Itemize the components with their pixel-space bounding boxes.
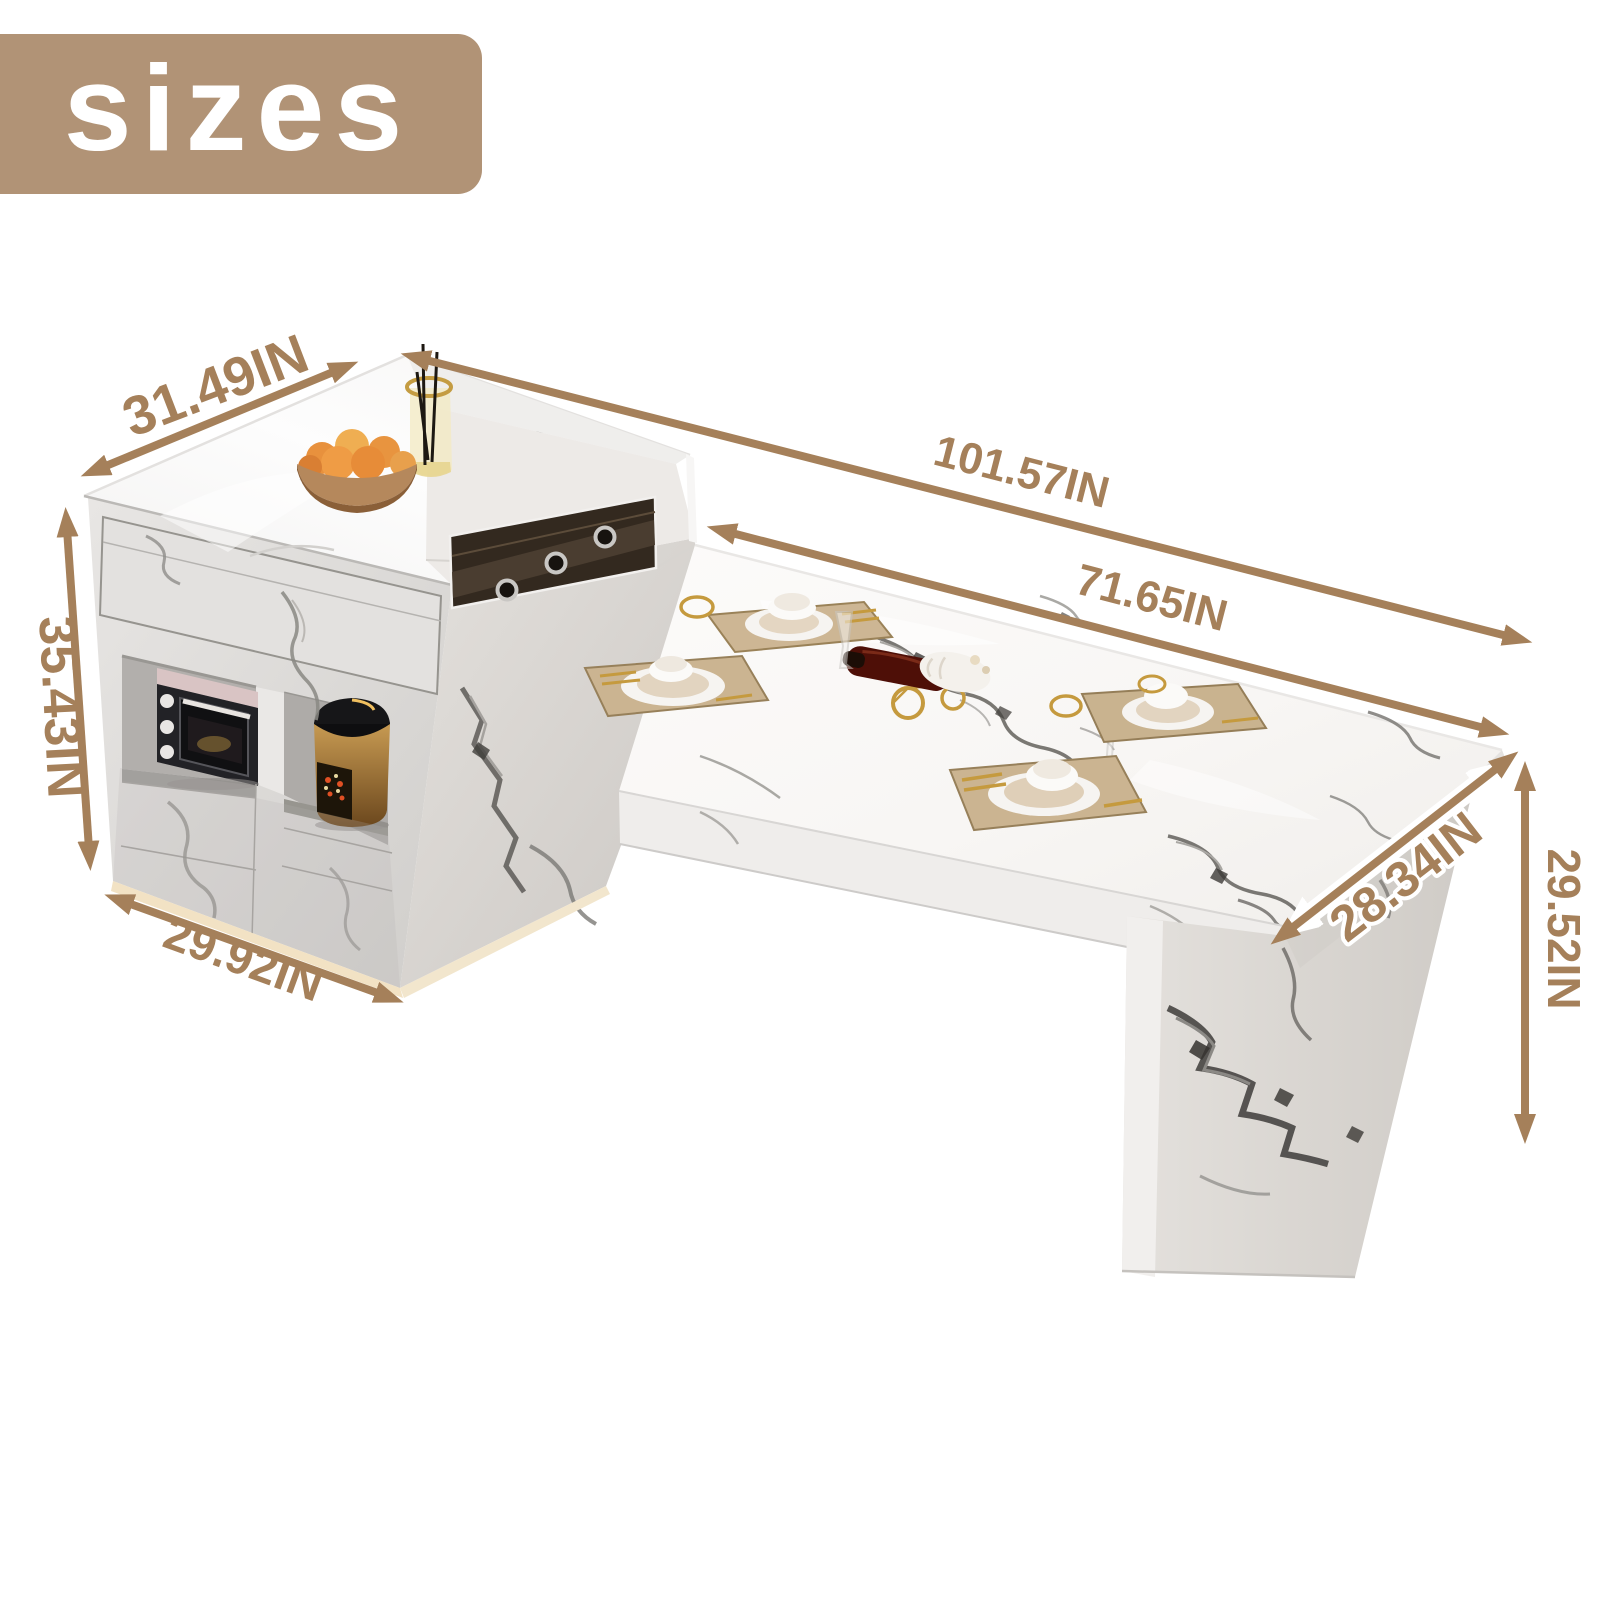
svg-text:35.43IN: 35.43IN <box>27 615 94 800</box>
svg-text:29.52IN: 29.52IN <box>1538 848 1590 1009</box>
svg-text:sizes: sizes <box>64 40 412 176</box>
